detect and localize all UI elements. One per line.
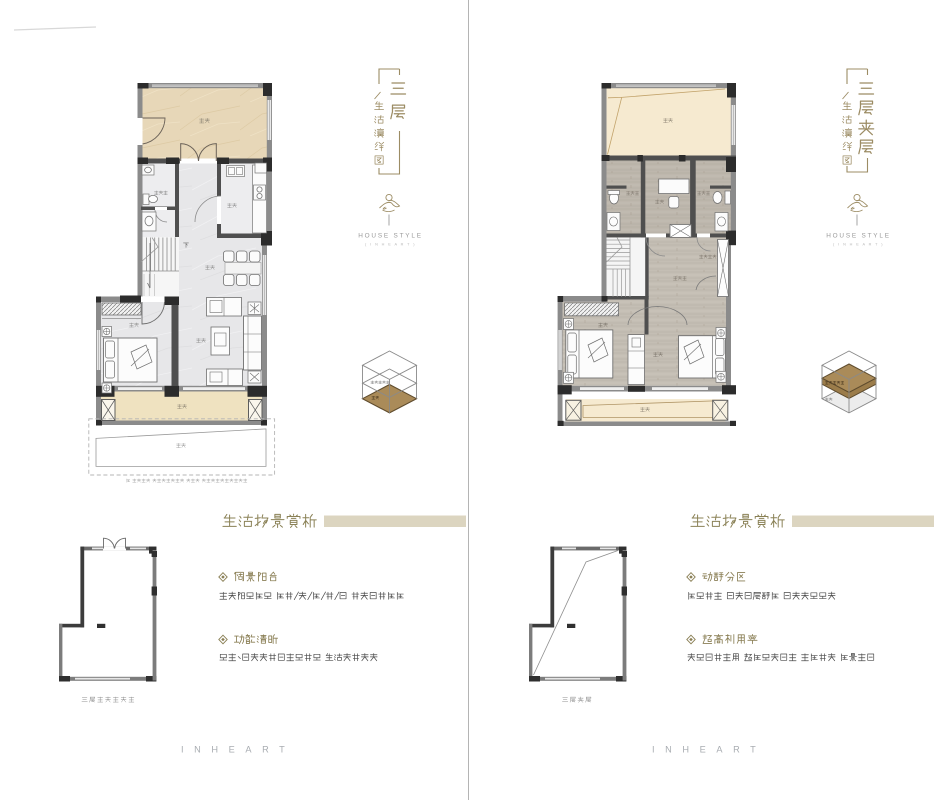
svg-text:INHEART: INHEART: [181, 745, 295, 755]
svg-text:HOUSE STYLE: HOUSE STYLE: [358, 233, 423, 240]
svg-text:HOUSE STYLE: HOUSE STYLE: [826, 233, 891, 240]
svg-text:INHEART: INHEART: [652, 745, 766, 755]
svg-text:( I N H E A R T ): ( I N H E A R T ): [833, 243, 884, 247]
svg-text:( I N H E A R T ): ( I N H E A R T ): [365, 243, 416, 247]
